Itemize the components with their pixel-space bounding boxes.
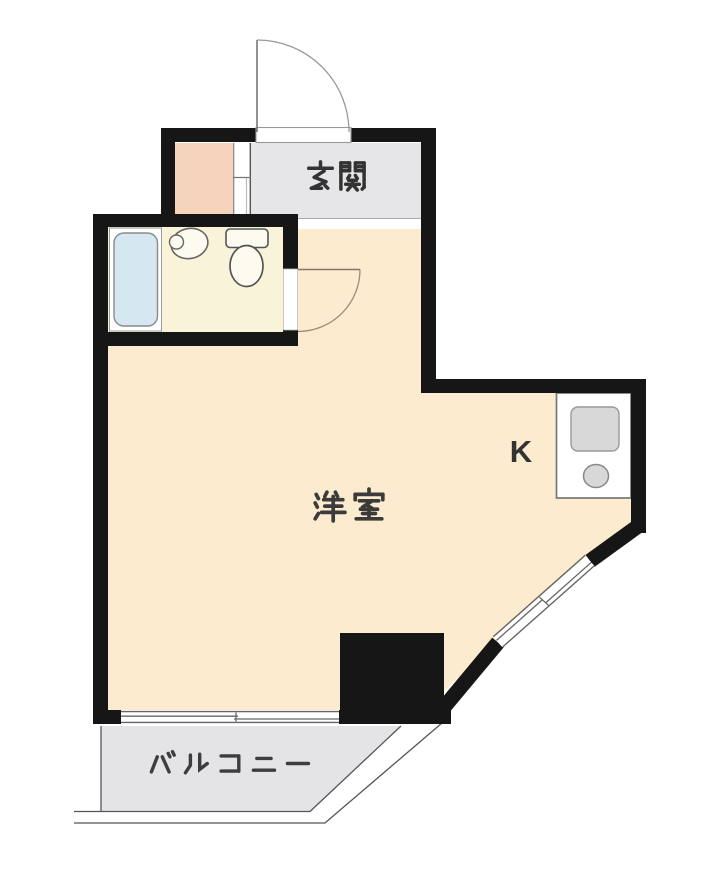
svg-text:K: K: [510, 434, 533, 469]
